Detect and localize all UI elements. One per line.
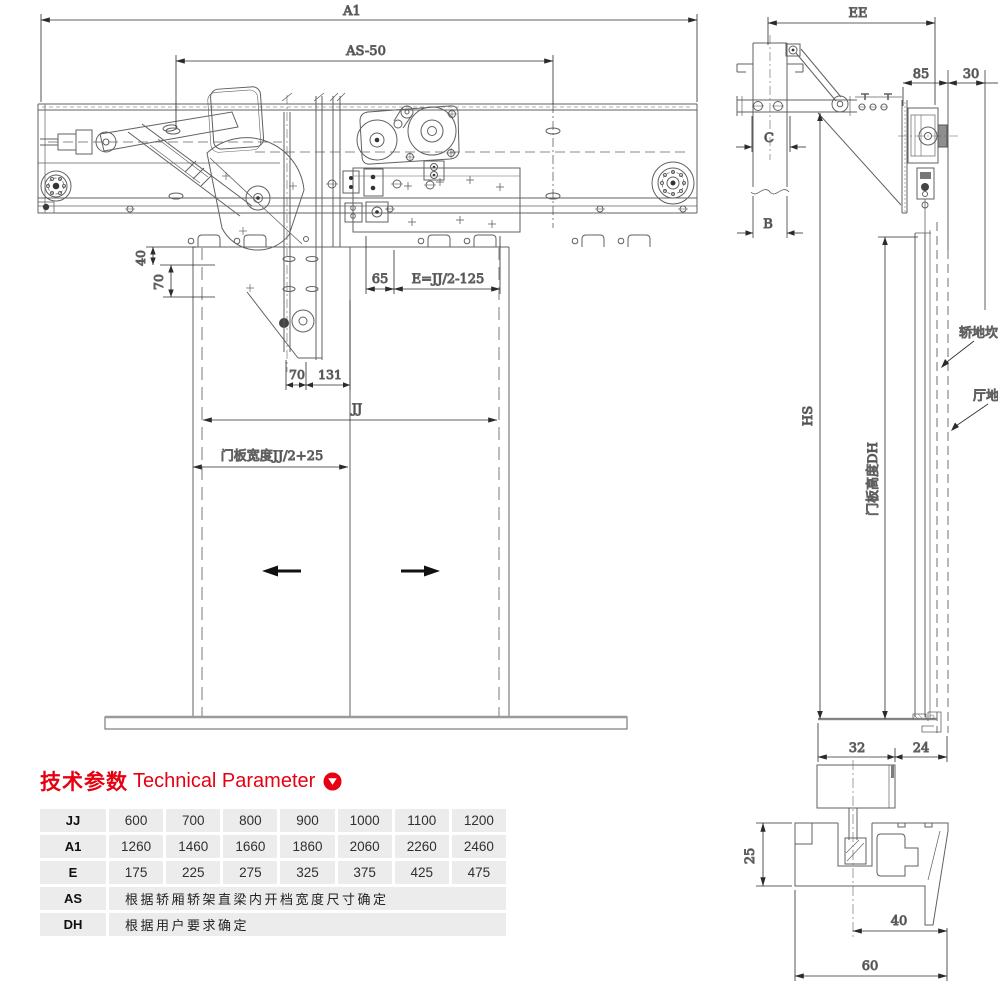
dim-hs-label: HS — [801, 406, 816, 426]
floor-sill — [105, 717, 627, 729]
param-cell: 1860 — [280, 835, 334, 858]
param-cell: 1260 — [109, 835, 163, 858]
side-dimensions — [736, 17, 998, 719]
door-direction-arrows — [262, 566, 440, 577]
sill-detail-view: 32 24 25 40 60 — [743, 723, 948, 981]
table-title-zh: 技术参数 — [40, 766, 128, 796]
front-dimensions — [41, 14, 697, 467]
param-row-label: E — [40, 861, 106, 884]
param-cell: 475 — [452, 861, 506, 884]
technical-parameter-title: 技术参数 Technical Parameter — [40, 766, 506, 796]
dim-85-label: 85 — [913, 67, 930, 82]
param-cell: 800 — [223, 809, 277, 832]
param-cell: 2260 — [395, 835, 449, 858]
dim-c-label: C — [764, 131, 774, 146]
param-cell: 700 — [166, 809, 220, 832]
dim-as50-label: AS-50 — [345, 44, 386, 59]
param-note: 根据用户要求确定 — [109, 913, 506, 936]
param-cell: 275 — [223, 861, 277, 884]
door-panels — [193, 247, 509, 717]
door-width-label: 门板宽度JJ/2+25 — [221, 448, 324, 464]
dim-70-mid-label: 70 — [289, 367, 305, 382]
dim-131-label: 131 — [318, 367, 342, 382]
sill-profile — [795, 760, 948, 938]
detail-dim-32-label: 32 — [849, 741, 866, 756]
operator-box — [304, 168, 521, 242]
door-crank-mechanism — [40, 112, 304, 250]
param-cell: 600 — [109, 809, 163, 832]
param-row-label: A1 — [40, 835, 106, 858]
param-cell: 900 — [280, 809, 334, 832]
param-cell: 2460 — [452, 835, 506, 858]
dim-a1-label: A1 — [342, 4, 361, 19]
header-rail — [38, 104, 697, 213]
param-cell: 225 — [166, 861, 220, 884]
dim-e-label: E=JJ/2-125 — [412, 272, 485, 287]
side-sill — [818, 712, 941, 732]
param-cell: 1660 — [223, 835, 277, 858]
parameter-table: JJ 600 700 800 900 1000 1100 1200 A1 126… — [40, 809, 506, 936]
elevator-door-drawing-page: A1 AS-50 40 70 65 E=JJ/2-125 70 131 JJ 门… — [0, 0, 998, 991]
param-cell: 375 — [338, 861, 392, 884]
dim-b-label: B — [763, 217, 773, 232]
param-cell: 1000 — [338, 809, 392, 832]
dim-jj-label: JJ — [350, 402, 362, 417]
door-hanger-tabs — [188, 235, 650, 247]
door-height-label: 门板高度DH — [865, 442, 881, 516]
param-cell: 1460 — [166, 835, 220, 858]
detail-dim-60-label: 60 — [862, 959, 879, 974]
param-row-label: JJ — [40, 809, 106, 832]
table-title-en: Technical Parameter — [133, 770, 315, 793]
center-channel — [246, 93, 345, 372]
right-pulley — [652, 162, 694, 204]
detail-dim-25-label: 25 — [743, 848, 758, 865]
car-sill-label: 轿地坎 — [959, 326, 998, 341]
front-view: A1 AS-50 40 70 65 E=JJ/2-125 70 131 JJ 门… — [38, 4, 697, 729]
param-cell: 1200 — [452, 809, 506, 832]
dim-ee-label: EE — [849, 6, 868, 21]
param-cell: 425 — [395, 861, 449, 884]
param-cell: 1100 — [395, 809, 449, 832]
param-cell: 325 — [280, 861, 334, 884]
left-pulley — [41, 171, 71, 201]
dim-70-left-label: 70 — [151, 274, 166, 290]
dim-40-label: 40 — [133, 250, 148, 266]
hall-sill-label: 厅地坎 — [973, 389, 998, 404]
belt-cover — [207, 86, 264, 153]
detail-dim-40-label: 40 — [891, 914, 908, 929]
param-note: 根据轿厢轿架直梁内开档宽度尺寸确定 — [109, 887, 506, 910]
param-cell: 175 — [109, 861, 163, 884]
technical-parameter-section: 技术参数 Technical Parameter JJ 600 700 800 … — [40, 766, 506, 936]
param-row-label: AS — [40, 887, 106, 910]
red-drop-badge-icon — [323, 772, 342, 791]
side-view: EE 85 30 C B HS 门板高度DH 轿地坎 厅地坎 — [736, 6, 998, 733]
dim-30-label: 30 — [963, 67, 980, 82]
param-row-label: DH — [40, 913, 106, 936]
detail-dim-24-label: 24 — [913, 741, 930, 756]
dim-65-label: 65 — [372, 272, 389, 287]
param-cell: 2060 — [338, 835, 392, 858]
